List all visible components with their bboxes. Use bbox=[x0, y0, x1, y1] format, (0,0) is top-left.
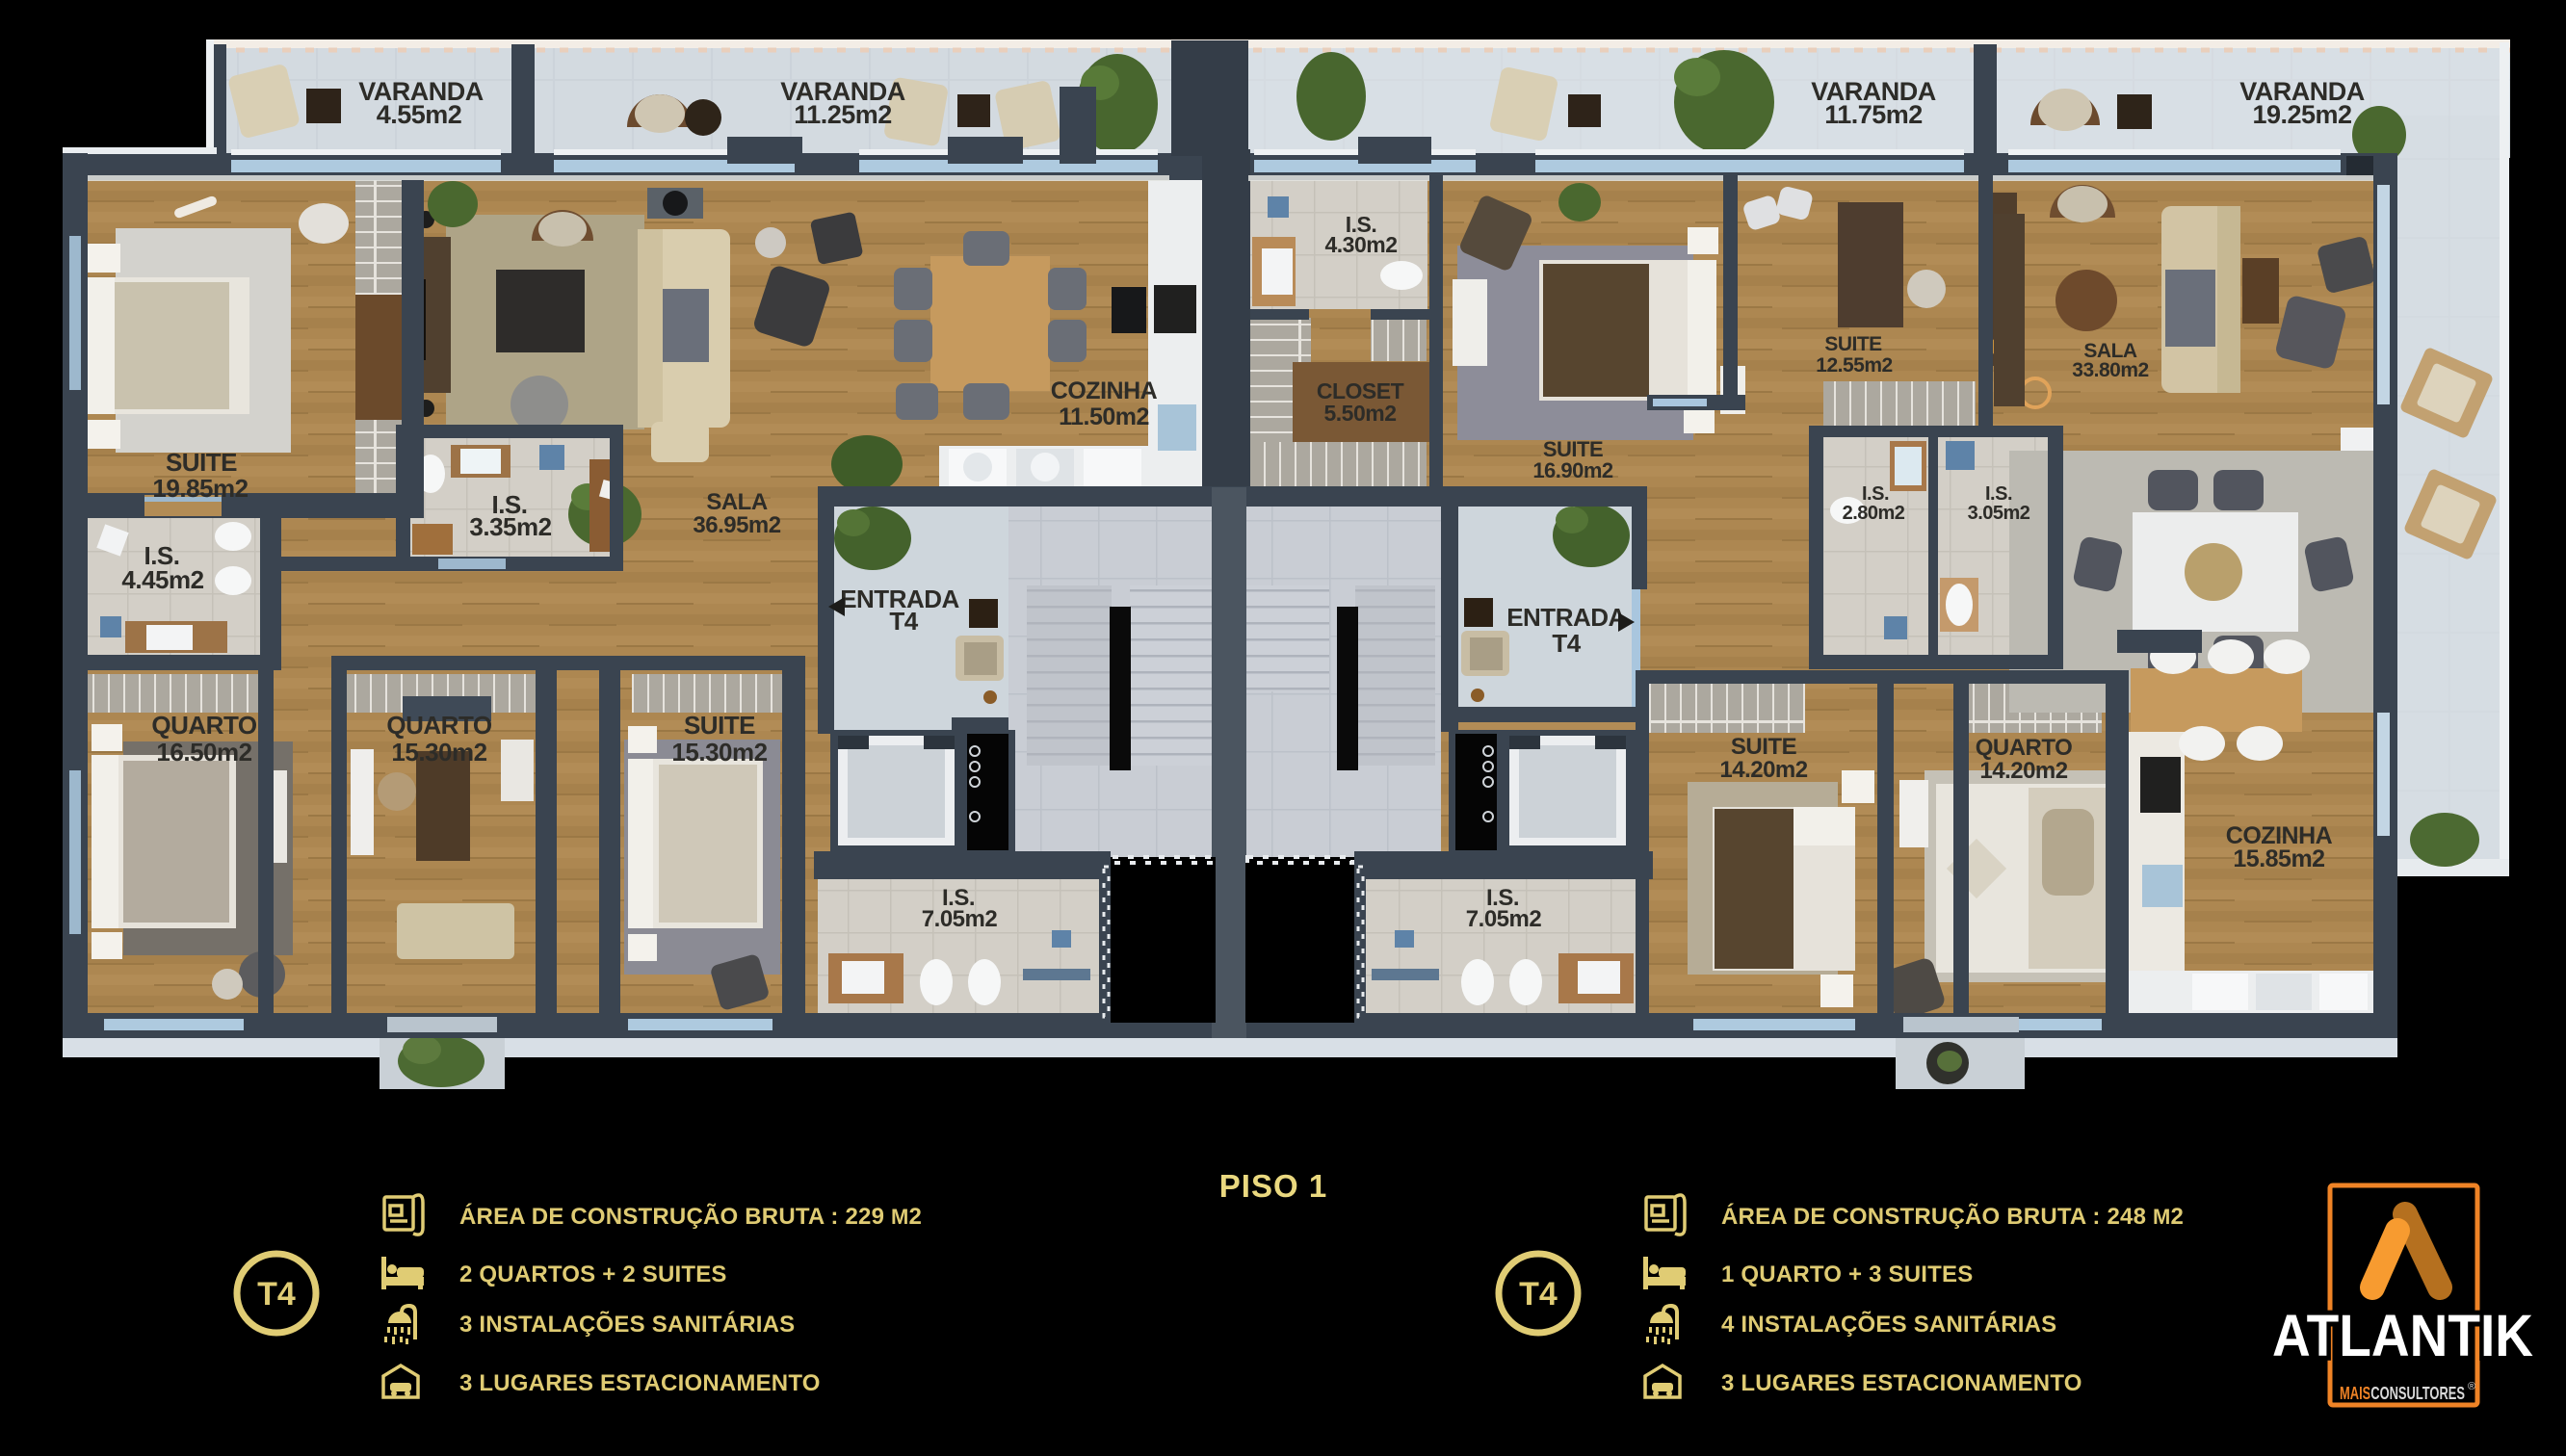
svg-text:36.95m2: 36.95m2 bbox=[693, 512, 780, 538]
svg-text:2 QUARTOS + 2 SUITES: 2 QUARTOS + 2 SUITES bbox=[459, 1261, 727, 1287]
svg-text:11.50m2: 11.50m2 bbox=[1059, 403, 1149, 430]
svg-text:PISO 1: PISO 1 bbox=[1219, 1168, 1327, 1204]
svg-text:3.05m2: 3.05m2 bbox=[1968, 503, 2030, 524]
svg-text:16.90m2: 16.90m2 bbox=[1532, 458, 1613, 482]
svg-text:14.20m2: 14.20m2 bbox=[1719, 757, 1807, 783]
svg-text:19.85m2: 19.85m2 bbox=[152, 474, 248, 503]
svg-text:11.25m2: 11.25m2 bbox=[794, 100, 892, 129]
svg-text:3.35m2: 3.35m2 bbox=[469, 512, 551, 541]
svg-text:14.20m2: 14.20m2 bbox=[1979, 758, 2067, 784]
svg-text:3 LUGARES ESTACIONAMENTO: 3 LUGARES ESTACIONAMENTO bbox=[459, 1370, 821, 1396]
svg-text:ÁREA DE CONSTRUÇÃO BRUTA : 22: ÁREA DE CONSTRUÇÃO BRUTA : 229 M2 bbox=[459, 1203, 922, 1230]
svg-text:SUITE: SUITE bbox=[1731, 734, 1797, 760]
svg-text:SUITE: SUITE bbox=[166, 448, 237, 477]
svg-text:QUARTO: QUARTO bbox=[151, 711, 256, 740]
svg-text:15.30m2: 15.30m2 bbox=[671, 738, 767, 767]
svg-text:4.30m2: 4.30m2 bbox=[1324, 232, 1397, 257]
svg-text:I.S.: I.S. bbox=[1862, 483, 1889, 505]
svg-text:QUARTO: QUARTO bbox=[386, 711, 491, 740]
svg-text:16.50m2: 16.50m2 bbox=[156, 738, 251, 767]
svg-text:3 INSTALAÇÕES SANITÁRIAS: 3 INSTALAÇÕES SANITÁRIAS bbox=[459, 1311, 795, 1338]
svg-text:COZINHA: COZINHA bbox=[1051, 377, 1158, 404]
svg-text:2.80m2: 2.80m2 bbox=[1843, 503, 1905, 524]
svg-text:T4: T4 bbox=[1552, 629, 1581, 658]
svg-text:T4: T4 bbox=[257, 1276, 296, 1313]
svg-text:1 QUARTO + 3 SUITES: 1 QUARTO + 3 SUITES bbox=[1721, 1261, 1973, 1287]
svg-text:I.S.: I.S. bbox=[1985, 483, 2012, 505]
svg-text:4.45m2: 4.45m2 bbox=[121, 565, 203, 594]
svg-text:SUITE: SUITE bbox=[684, 711, 755, 740]
svg-text:ATLANTIK: ATLANTIK bbox=[2272, 1303, 2533, 1368]
svg-text:7.05m2: 7.05m2 bbox=[922, 906, 998, 932]
svg-text:3 LUGARES ESTACIONAMENTO: 3 LUGARES ESTACIONAMENTO bbox=[1721, 1370, 2082, 1396]
svg-text:MAISCONSULTORES: MAISCONSULTORES bbox=[2340, 1384, 2465, 1403]
svg-text:SUITE: SUITE bbox=[1824, 333, 1882, 355]
svg-text:T4: T4 bbox=[889, 607, 918, 636]
svg-text:11.75m2: 11.75m2 bbox=[1824, 100, 1923, 129]
svg-text:7.05m2: 7.05m2 bbox=[1466, 906, 1542, 932]
svg-text:12.55m2: 12.55m2 bbox=[1816, 354, 1892, 377]
svg-text:15.30m2: 15.30m2 bbox=[391, 738, 486, 767]
svg-text:ENTRADA: ENTRADA bbox=[1506, 603, 1626, 632]
svg-text:19.25m2: 19.25m2 bbox=[2252, 100, 2351, 129]
svg-text:15.85m2: 15.85m2 bbox=[2233, 845, 2324, 872]
svg-text:4.55m2: 4.55m2 bbox=[377, 100, 462, 129]
svg-text:33.80m2: 33.80m2 bbox=[2072, 359, 2148, 381]
svg-text:T4: T4 bbox=[1519, 1276, 1558, 1313]
svg-text:SALA: SALA bbox=[706, 489, 768, 515]
svg-text:5.50m2: 5.50m2 bbox=[1323, 401, 1396, 426]
svg-text:4 INSTALAÇÕES SANITÁRIAS: 4 INSTALAÇÕES SANITÁRIAS bbox=[1721, 1311, 2056, 1338]
svg-text:ÁREA DE CONSTRUÇÃO BRUTA : 24: ÁREA DE CONSTRUÇÃO BRUTA : 248 M2 bbox=[1721, 1203, 2184, 1230]
svg-text:QUARTO: QUARTO bbox=[1976, 735, 2073, 761]
svg-text:®: ® bbox=[2468, 1381, 2475, 1392]
